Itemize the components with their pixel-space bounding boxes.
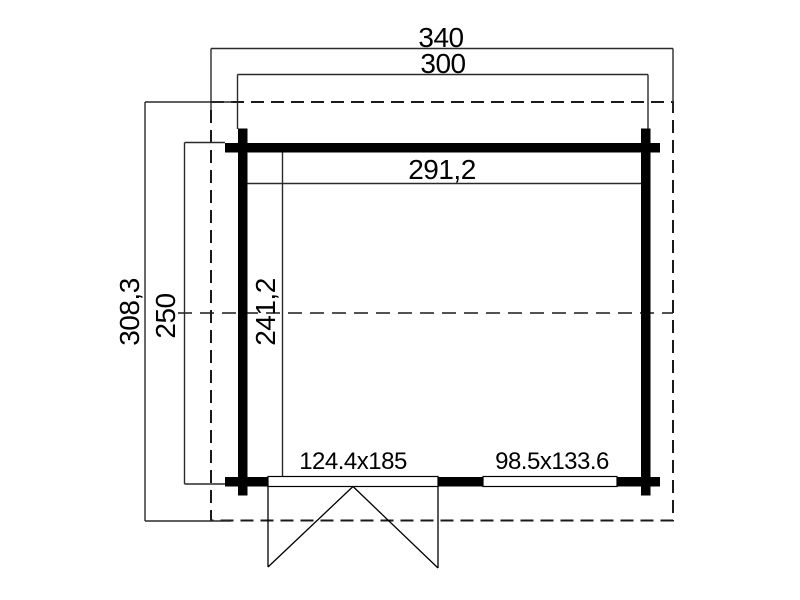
door-opening [268, 477, 438, 487]
label-window-size: 98.5x133.6 [487, 450, 617, 474]
label-roof-depth: 308,3 [116, 272, 144, 352]
label-interior-width: 291,2 [402, 156, 482, 184]
wall-bottom-left-segment [225, 477, 268, 487]
floor-plan-canvas: 340 300 291,2 308,3 250 241,2 124.4x185 … [0, 0, 800, 600]
label-wall-width: 300 [413, 50, 473, 78]
label-interior-depth: 241,2 [252, 272, 280, 352]
wall-bottom-right-segment [617, 477, 660, 487]
wall-top [225, 143, 660, 153]
label-wall-depth: 250 [152, 281, 180, 351]
window-opening [483, 477, 617, 487]
label-door-size: 124.4x185 [293, 450, 413, 474]
door-swing-lines [268, 487, 438, 569]
wall-bottom-middle-segment [438, 477, 483, 487]
wall-right [641, 129, 651, 496]
wall-left [238, 129, 248, 496]
